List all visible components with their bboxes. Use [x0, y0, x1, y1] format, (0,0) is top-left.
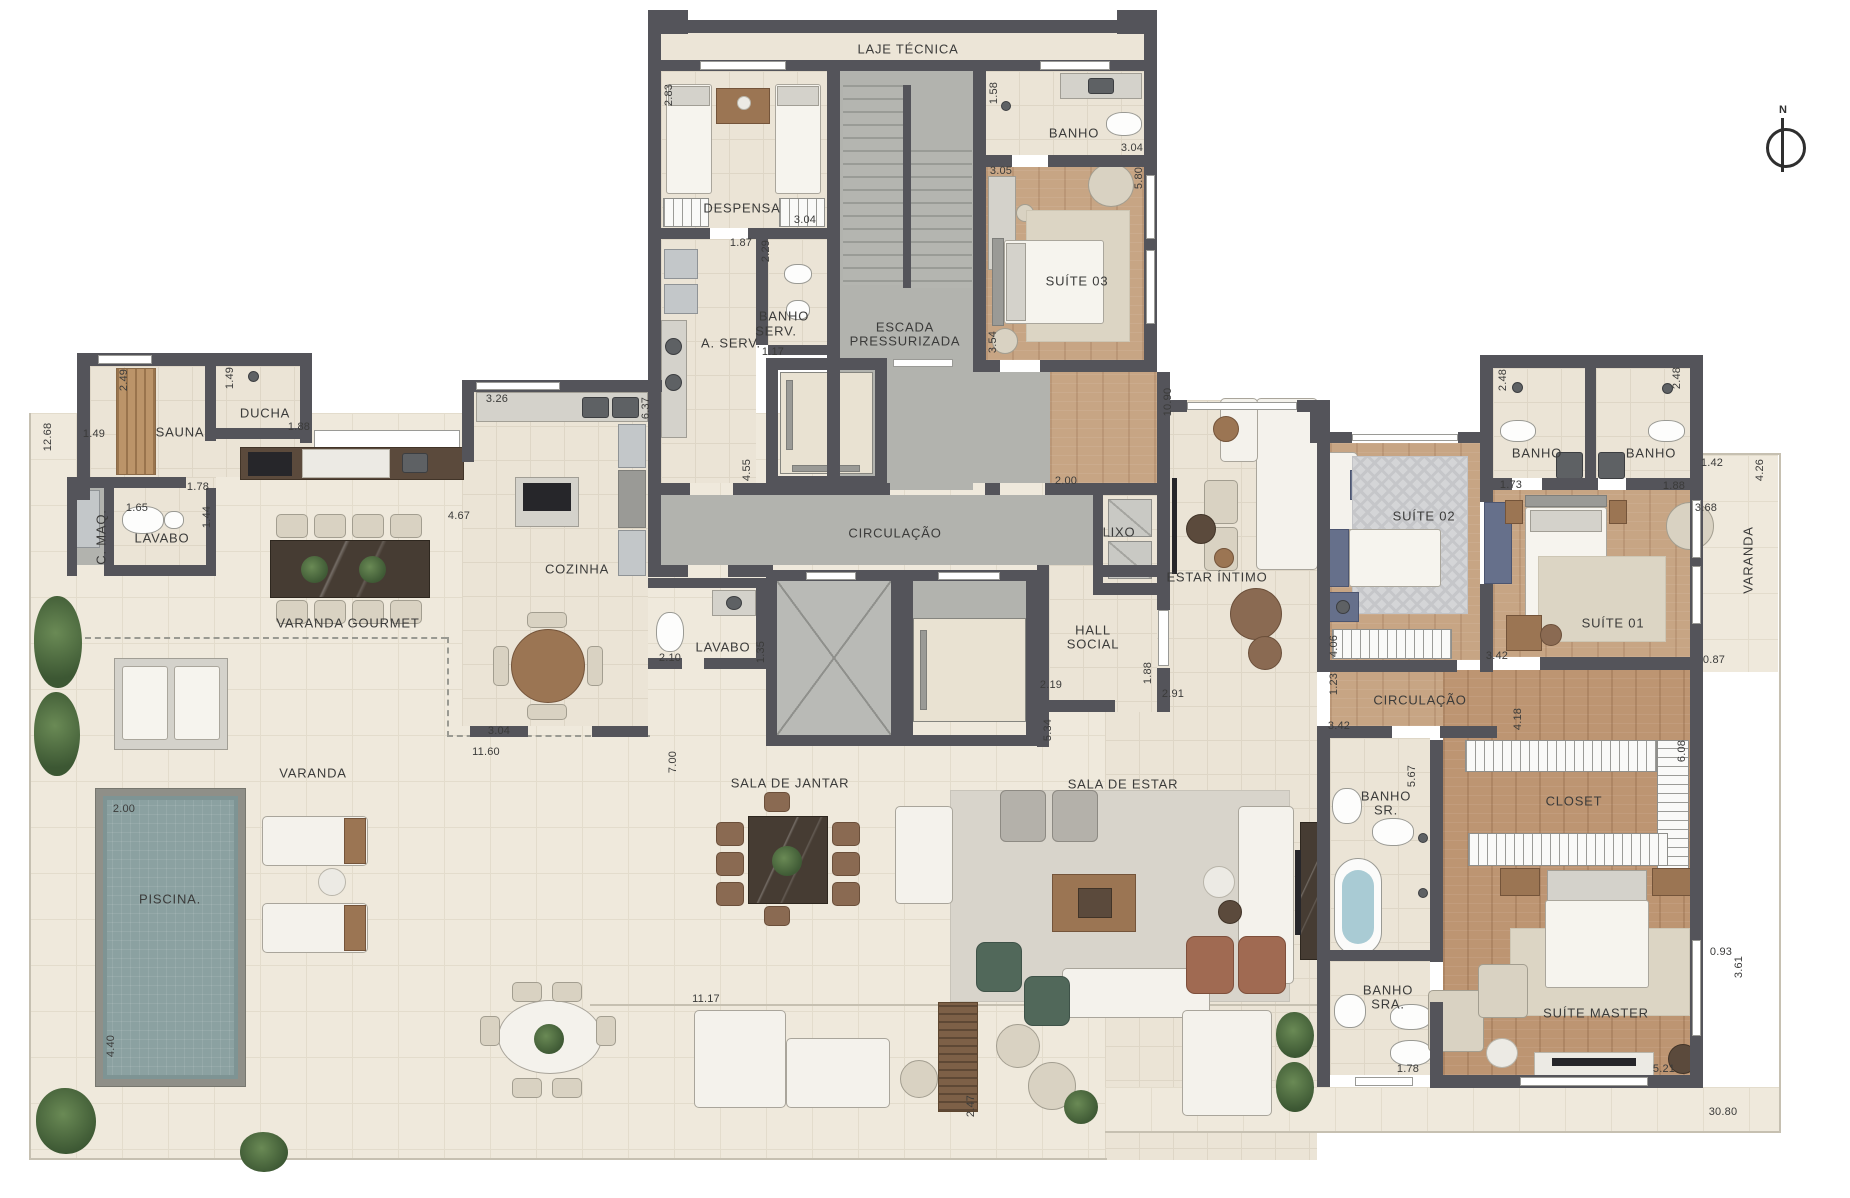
side-table	[1214, 548, 1234, 568]
room-label-suite-01: SUÍTE 01	[1582, 616, 1645, 631]
leather-chair	[1238, 936, 1286, 994]
basin	[726, 596, 742, 610]
pouf	[900, 1060, 938, 1098]
wall	[985, 483, 1000, 495]
chair	[552, 1078, 582, 1098]
dimension-label: 30.80	[1709, 1106, 1738, 1118]
room-label-banho-serv-l1: BANHO	[759, 309, 809, 324]
laundry-sink	[665, 374, 682, 391]
dimension-label: 1.88	[1142, 662, 1154, 684]
dimension-label: 1.35	[755, 641, 767, 663]
lounger-head	[344, 905, 366, 951]
pillow	[777, 86, 819, 106]
window	[1146, 250, 1155, 324]
landing-floor	[973, 372, 1050, 483]
room-label-a-serv: A. SERV.	[701, 336, 761, 351]
room-label-hall-l1: HALL	[1075, 623, 1111, 638]
dimension-label: 4.06	[1328, 635, 1340, 657]
plant	[301, 556, 328, 583]
room-label-banho-sra-l2: SRA.	[1371, 997, 1405, 1012]
elevator-car	[913, 618, 1026, 722]
wall	[648, 578, 768, 588]
room-label-banho-sra-l1: BANHO	[1363, 983, 1413, 998]
room-label-banho-s01: BANHO	[1626, 446, 1676, 461]
armchair	[1052, 790, 1098, 842]
pillows	[1329, 529, 1349, 587]
floor-plan: N LAJE TÉCNICABANHOSUÍTE 03DESPENSABANHO…	[0, 0, 1850, 1198]
dimension-label: 3.68	[1695, 502, 1717, 514]
dimension-label: 2.10	[659, 652, 681, 664]
dimension-label: 1.42	[1701, 457, 1723, 469]
room-label-varanda-dir: VARANDA	[1741, 526, 1756, 593]
wall	[827, 71, 840, 490]
dimension-label: 2.49	[118, 369, 130, 391]
window	[1187, 402, 1297, 410]
wardrobe	[663, 198, 709, 227]
chair	[390, 514, 422, 538]
tv	[1295, 850, 1301, 935]
dimension-label: 2.29	[760, 240, 772, 262]
outdoor-sofa	[694, 1010, 786, 1108]
terrace-edge-line	[1702, 453, 1780, 455]
lamp	[737, 96, 751, 110]
sink	[1334, 994, 1366, 1028]
dimension-label: 1.78	[187, 481, 209, 493]
side-table	[1486, 1038, 1518, 1068]
terrace-edge-line	[29, 413, 31, 1160]
room-label-escada-l1: ESCADA	[876, 320, 934, 335]
window	[1146, 175, 1155, 239]
toilet	[656, 612, 684, 652]
side-table	[318, 868, 346, 896]
dimension-label: 1.73	[1500, 479, 1522, 491]
lounger-head	[344, 818, 366, 864]
wall	[1585, 368, 1596, 478]
compass-north-label: N	[1779, 104, 1787, 116]
desk	[1506, 615, 1542, 651]
wall	[1480, 432, 1493, 502]
dimension-label: 3.05	[990, 165, 1012, 177]
wall	[205, 353, 216, 441]
room-label-banho-sr-l2: SR.	[1374, 803, 1398, 818]
room-label-sala-de-estar: SALA DE ESTAR	[1068, 777, 1179, 792]
dimension-label: 4.55	[741, 459, 753, 481]
laundry-sink	[665, 338, 682, 355]
terrace-edge-line	[1779, 453, 1781, 1133]
dimension-label: 2.48	[1671, 367, 1683, 389]
desk-chair	[1540, 624, 1562, 646]
nightstand	[1505, 500, 1523, 524]
wall	[1330, 432, 1352, 443]
wall	[1440, 726, 1497, 738]
wardrobe	[1332, 629, 1452, 659]
dimension-label: 2.00	[1055, 475, 1077, 487]
armchair	[1478, 964, 1528, 1018]
double-bed	[1545, 900, 1649, 988]
room-label-estar-intimo: ESTAR ÍNTIMO	[1166, 570, 1267, 585]
elevator-door-gap	[806, 572, 856, 580]
sink	[1088, 78, 1114, 94]
chair	[764, 792, 790, 812]
dimension-label: 11.17	[692, 993, 720, 1005]
wall	[1480, 355, 1703, 368]
sofa	[1256, 398, 1318, 570]
cooktop	[523, 483, 571, 511]
wall	[1037, 700, 1115, 712]
dimension-label: 1.44	[201, 506, 213, 528]
wall	[1100, 565, 1157, 577]
cabinet	[618, 530, 646, 576]
dimension-label: 7.00	[667, 751, 679, 773]
wall	[1317, 660, 1457, 672]
gourmet-boundary-dash	[85, 637, 447, 639]
wall	[648, 228, 710, 239]
wall	[648, 483, 690, 495]
wall	[206, 488, 216, 576]
grill	[248, 452, 292, 476]
dimension-label: 5.80	[1133, 167, 1145, 189]
sink	[402, 453, 428, 473]
hedge	[36, 1088, 96, 1154]
wall	[1117, 10, 1157, 34]
dimension-label: 3.61	[1733, 956, 1745, 978]
dimension-label: 2.47	[965, 1095, 977, 1117]
double-bed	[1349, 529, 1441, 587]
dimension-label: 5.21	[1653, 1063, 1675, 1075]
window	[314, 430, 460, 448]
shower-head	[1418, 833, 1428, 843]
dimension-label: 1.65	[126, 502, 148, 514]
terrace-edge-line	[29, 1158, 1107, 1160]
armchair	[1088, 163, 1134, 207]
tv	[1552, 1058, 1636, 1066]
door-gap	[1355, 1077, 1413, 1086]
stair-flight	[910, 150, 972, 288]
dimension-label: 1.49	[224, 367, 236, 389]
room-label-hall-l2: SOCIAL	[1067, 637, 1119, 652]
room-label-banho-sr-l1: BANHO	[1361, 789, 1411, 804]
counter-marble	[302, 449, 390, 478]
room-label-banho-suite03: BANHO	[1049, 126, 1099, 141]
window	[1352, 434, 1458, 441]
dimension-label: 2.48	[1497, 369, 1509, 391]
wall	[728, 565, 773, 577]
stair-flight	[843, 85, 903, 285]
compass-icon	[1766, 128, 1806, 168]
dimension-label: 3.42	[1486, 650, 1508, 662]
room-label-lixo: LIXO	[1103, 525, 1136, 540]
shower-head	[1418, 888, 1428, 898]
dimension-label: 3.04	[1121, 142, 1143, 154]
round-table	[511, 629, 585, 703]
chair	[716, 882, 744, 906]
dimension-label: 3.54	[987, 331, 999, 353]
chair	[493, 646, 509, 686]
elevator-door	[792, 465, 860, 472]
plant	[359, 556, 386, 583]
window	[893, 359, 953, 367]
chair	[832, 852, 860, 876]
dimension-label: 3.04	[794, 214, 816, 226]
sofa	[895, 806, 953, 904]
room-label-cozinha: COZINHA	[545, 562, 609, 577]
shower-head	[248, 371, 259, 382]
headboard	[992, 238, 1004, 326]
dimension-label: 2.83	[663, 84, 675, 106]
toilet	[784, 264, 812, 284]
room-label-c-maq: C. MAQ.	[94, 509, 109, 564]
pouf	[996, 1024, 1040, 1068]
dimension-label: 1.88	[1663, 480, 1685, 492]
dimension-label: 4.26	[1754, 459, 1766, 481]
washer	[664, 249, 698, 279]
window	[1692, 940, 1701, 1036]
wall	[90, 477, 186, 488]
sink	[1332, 788, 1362, 824]
elevator-wall	[766, 735, 902, 746]
wall	[67, 477, 77, 576]
wall	[1540, 657, 1702, 670]
room-label-suite-master: SUÍTE MASTER	[1543, 1006, 1649, 1021]
room-label-closet: CLOSET	[1546, 794, 1603, 809]
chair	[764, 906, 790, 926]
elevator-wall	[766, 358, 778, 488]
outdoor-sofa	[1182, 1010, 1272, 1116]
tray	[1078, 888, 1112, 918]
window	[98, 355, 152, 364]
chair	[716, 852, 744, 876]
chair	[352, 514, 384, 538]
dimension-label: 4.40	[105, 1035, 117, 1057]
coffee-table	[1186, 514, 1216, 544]
elevator-shaft	[777, 581, 891, 735]
wall	[1093, 583, 1157, 595]
armchair	[976, 942, 1022, 992]
dimension-label: 12.68	[42, 423, 54, 452]
side-table	[1218, 900, 1242, 924]
closet-run	[1465, 740, 1657, 772]
wall	[648, 10, 688, 34]
elevator-handle	[786, 380, 793, 450]
pillows	[1530, 510, 1602, 532]
room-label-lavabo-esq: LAVABO	[135, 531, 190, 546]
dimension-label: 6.08	[1676, 740, 1688, 762]
wall	[104, 565, 216, 576]
elevator-wall	[875, 358, 887, 488]
leather-chair	[1186, 936, 1234, 994]
wall	[986, 360, 1000, 372]
elevator-handle	[920, 630, 927, 710]
pillows	[1006, 243, 1026, 321]
dimension-label: 1.58	[988, 82, 1000, 104]
oven-column	[618, 470, 646, 528]
dimension-label: 4.67	[448, 510, 470, 522]
elevator-wall	[902, 570, 913, 746]
dryer	[664, 284, 698, 314]
wall	[1310, 400, 1330, 443]
elevator-wall	[891, 570, 902, 746]
chair	[512, 982, 542, 1002]
room-label-piscina: PISCINA.	[139, 892, 201, 907]
wall	[733, 483, 890, 495]
pillows	[1547, 870, 1647, 902]
dimension-label: 2.00	[113, 803, 135, 815]
room-label-banho-serv-l2: SERV.	[755, 324, 797, 339]
room-label-circulacao-centro: CIRCULAÇÃO	[848, 526, 941, 541]
dimension-label: 3.42	[1328, 720, 1350, 732]
dimension-label: 3.26	[486, 393, 508, 405]
elevator-lobby	[913, 581, 1026, 621]
plant	[534, 1024, 564, 1054]
nightstand	[1609, 500, 1627, 524]
headboard	[1525, 495, 1607, 507]
dimension-label: 2.19	[1040, 679, 1062, 691]
dimension-label: 11.60	[472, 746, 500, 758]
room-label-suite-02: SUÍTE 02	[1393, 509, 1456, 524]
chair	[314, 514, 346, 538]
chair	[832, 822, 860, 846]
side-table	[1213, 416, 1239, 442]
toilet	[1106, 112, 1142, 136]
room-label-varanda-esq: VARANDA	[279, 766, 346, 781]
chair	[552, 982, 582, 1002]
chair	[527, 704, 567, 720]
chair	[716, 822, 744, 846]
wall	[1430, 740, 1443, 962]
nightstand	[1500, 868, 1540, 896]
sink	[164, 511, 184, 529]
chair	[512, 1078, 542, 1098]
chair	[276, 514, 308, 538]
room-label-varanda-gourmet: VARANDA GOURMET	[276, 616, 419, 631]
window	[1520, 1077, 1648, 1086]
compass-needle-icon	[1781, 118, 1784, 172]
wall	[973, 71, 986, 372]
wall	[1093, 495, 1103, 583]
fridge	[618, 424, 646, 468]
wall	[1048, 155, 1157, 167]
chair	[480, 1016, 500, 1046]
side-table	[1203, 866, 1235, 898]
cushion	[122, 666, 168, 740]
door-gap	[1158, 610, 1169, 666]
cushion	[174, 666, 220, 740]
hedge	[34, 692, 80, 776]
wall	[1317, 738, 1330, 1087]
chair	[527, 612, 567, 628]
room-label-lavabo-centro: LAVABO	[696, 640, 751, 655]
nightstand	[1652, 868, 1692, 896]
elevator-wall	[1026, 570, 1037, 746]
plant	[1064, 1090, 1098, 1124]
armchair	[1024, 976, 1070, 1026]
hedge	[240, 1132, 288, 1172]
wall	[1458, 432, 1480, 443]
wall	[1330, 950, 1430, 961]
gourmet-boundary-dash	[447, 637, 449, 737]
outdoor-sofa	[786, 1038, 890, 1108]
wall	[648, 565, 688, 577]
room-label-ducha: DUCHA	[240, 406, 290, 421]
window	[700, 61, 786, 70]
closet-run	[1468, 833, 1668, 866]
toilet	[1648, 420, 1685, 442]
dimension-label: 10.90	[1162, 388, 1174, 417]
wall	[462, 392, 474, 462]
kitchen-sink	[612, 397, 639, 418]
wall	[592, 726, 648, 737]
dimension-label: 4.18	[1512, 708, 1524, 730]
room-label-sala-de-jantar: SALA DE JANTAR	[731, 776, 850, 791]
swivel-armchair	[1230, 588, 1282, 640]
stair-divider	[903, 85, 911, 288]
kitchen-sink	[582, 397, 609, 418]
lamp	[1336, 600, 1350, 614]
dimension-label: 1.23	[1328, 673, 1340, 695]
window	[1040, 61, 1110, 70]
chair	[596, 1016, 616, 1046]
dimension-label: 3.04	[488, 725, 510, 737]
tv	[1172, 478, 1177, 574]
room-label-despensa: DESPENSA	[703, 201, 780, 216]
gourmet-table	[270, 540, 430, 598]
dimension-label: 5.34	[1042, 719, 1054, 741]
toilet	[1372, 818, 1414, 846]
room-label-escada-l2: PRESSURIZADA	[850, 334, 961, 349]
dimension-label: 1.49	[83, 428, 105, 440]
chair	[587, 646, 603, 686]
elevator-wall	[902, 735, 1037, 746]
dimension-label: 6.37	[640, 397, 652, 419]
wall	[1542, 478, 1598, 490]
terrace-edge-line	[1105, 1131, 1781, 1133]
window	[1692, 566, 1701, 624]
plant	[1276, 1062, 1314, 1112]
dimension-label: 1.87	[730, 237, 752, 249]
pool-water	[103, 796, 238, 1079]
dimension-label: 1.88	[288, 421, 310, 433]
suite03-closet-floor	[1050, 372, 1157, 483]
window	[476, 382, 560, 390]
dimension-label: 0.87	[1703, 654, 1725, 666]
room-label-banho-s02: BANHO	[1512, 446, 1562, 461]
bathtub-water	[1342, 870, 1374, 944]
room-label-laje-tecnica: LAJE TÉCNICA	[857, 42, 958, 57]
room-label-suite-03: SUÍTE 03	[1046, 274, 1109, 289]
shower-head	[1001, 101, 1011, 111]
hedge	[34, 596, 82, 688]
sink	[1598, 452, 1625, 479]
dimension-label: 1.78	[1397, 1063, 1419, 1075]
armchair	[1000, 790, 1046, 842]
wall	[648, 20, 1157, 33]
chair	[832, 882, 860, 906]
centerpiece-plant	[772, 846, 802, 876]
wall	[1040, 360, 1157, 372]
dimension-label: 2.91	[1162, 688, 1184, 700]
wall	[748, 228, 827, 239]
pouf	[1248, 636, 1282, 670]
dimension-label: 1.17	[762, 346, 784, 358]
plant	[1276, 1012, 1314, 1058]
toilet	[1500, 420, 1536, 442]
room-label-circulacao-dir: CIRCULAÇÃO	[1373, 693, 1466, 708]
shower-head	[1512, 382, 1523, 393]
dimension-label: 5.67	[1406, 765, 1418, 787]
elevator-door-gap	[938, 572, 1000, 580]
room-label-sauna: SAUNA	[156, 425, 205, 440]
dimension-label: 0.93	[1710, 946, 1732, 958]
